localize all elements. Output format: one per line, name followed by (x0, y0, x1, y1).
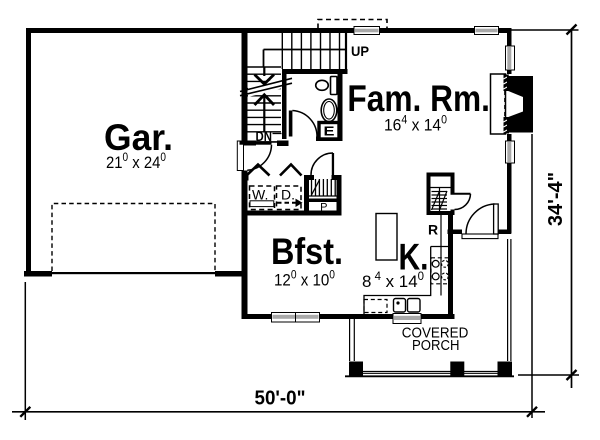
svg-text:P: P (320, 201, 327, 213)
svg-text:Fam. Rm.: Fam. Rm. (347, 78, 490, 119)
svg-text:W.: W. (252, 187, 268, 203)
svg-text:210 x 240: 210 x 240 (106, 152, 166, 172)
svg-text:UP: UP (351, 43, 369, 59)
svg-text:E: E (324, 125, 335, 139)
svg-text:Bfst.: Bfst. (271, 231, 343, 272)
svg-text:164 x 140: 164 x 140 (384, 115, 447, 135)
svg-text:50'-0": 50'-0" (255, 388, 306, 410)
svg-text:R: R (428, 222, 438, 238)
svg-text:8 4 x 140: 8 4 x 140 (362, 271, 424, 291)
svg-text:120 x 100: 120 x 100 (274, 270, 335, 290)
svg-text:34'-4": 34'-4" (545, 172, 567, 226)
svg-text:PORCH: PORCH (412, 338, 460, 354)
svg-text:D.: D. (281, 187, 295, 203)
